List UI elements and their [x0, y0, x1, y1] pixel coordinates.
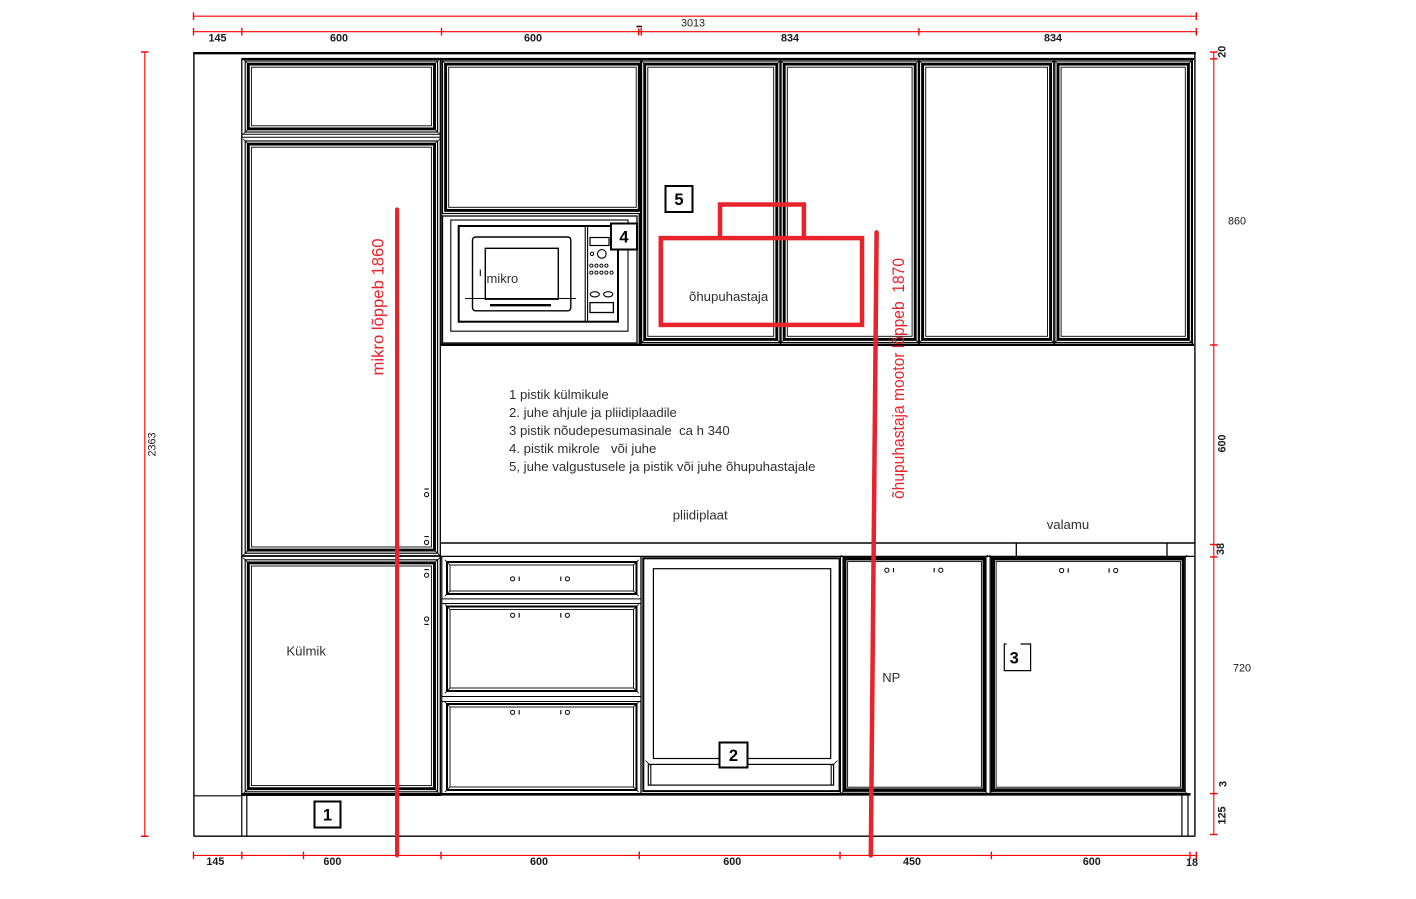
svg-text:125: 125 — [1217, 807, 1229, 825]
svg-text:4: 4 — [619, 229, 629, 247]
svg-text:4. pistik mikrole või juhe: 4. pistik mikrole või juhe — [509, 441, 656, 456]
svg-text:3: 3 — [1010, 649, 1019, 667]
svg-text:pliidiplaat: pliidiplaat — [673, 508, 728, 523]
svg-text:2. juhe ahjule ja pliidiplaadi: 2. juhe ahjule ja pliidiplaadile — [509, 405, 677, 420]
svg-text:õhupuhastaja mootor lõppeb 18: õhupuhastaja mootor lõppeb 1870 — [890, 258, 908, 499]
svg-text:5: 5 — [674, 191, 683, 209]
svg-text:5, juhe valgustusele ja pistik: 5, juhe valgustusele ja pistik või juhe … — [509, 459, 815, 474]
svg-text:145: 145 — [208, 32, 226, 44]
svg-text:3 pistik nõudepesumasinale ca: 3 pistik nõudepesumasinale ca h 340 — [509, 423, 730, 438]
svg-text:valamu: valamu — [1047, 517, 1090, 532]
svg-text:600: 600 — [1083, 856, 1101, 868]
svg-text:mikro lõppeb 1860: mikro lõppeb 1860 — [370, 239, 388, 376]
svg-text:NP: NP — [882, 670, 900, 685]
svg-text:Külmik: Külmik — [286, 644, 326, 659]
svg-text:2363: 2363 — [146, 433, 158, 457]
svg-text:mikro: mikro — [487, 271, 519, 286]
svg-text:2: 2 — [729, 747, 738, 765]
svg-text:720: 720 — [1233, 663, 1251, 675]
svg-text:600: 600 — [323, 856, 341, 868]
svg-text:834: 834 — [1044, 32, 1062, 44]
svg-text:450: 450 — [903, 856, 921, 868]
svg-text:20: 20 — [1217, 46, 1229, 58]
svg-text:600: 600 — [1217, 435, 1229, 453]
svg-text:18: 18 — [1186, 857, 1198, 869]
svg-text:1 pistik külmikule: 1 pistik külmikule — [509, 387, 609, 402]
svg-text:600: 600 — [723, 856, 741, 868]
svg-text:600: 600 — [530, 856, 548, 868]
svg-text:38: 38 — [1215, 543, 1227, 555]
svg-text:3: 3 — [1218, 781, 1230, 787]
svg-text:600: 600 — [524, 32, 542, 44]
svg-text:860: 860 — [1228, 216, 1246, 228]
svg-text:õhupuhastaja: õhupuhastaja — [689, 289, 769, 304]
svg-text:834: 834 — [781, 32, 799, 44]
svg-text:600: 600 — [330, 32, 348, 44]
svg-text:1: 1 — [323, 807, 332, 825]
svg-text:3013: 3013 — [681, 18, 705, 30]
svg-text:145: 145 — [206, 856, 224, 868]
